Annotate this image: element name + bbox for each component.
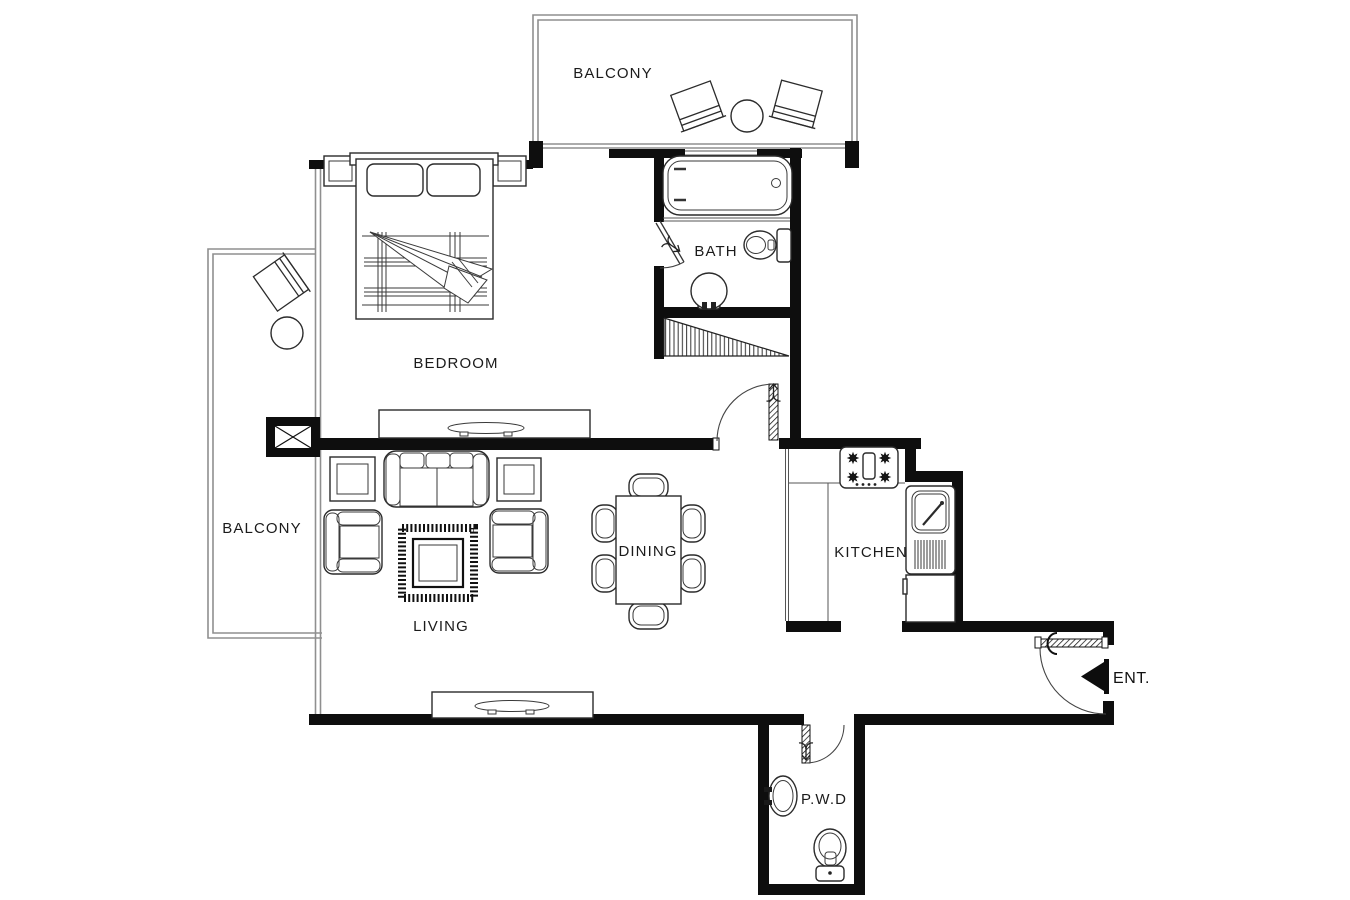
pwd-east-wall xyxy=(854,714,865,895)
tap-icon xyxy=(764,787,772,792)
label-dining: DINING xyxy=(618,543,677,560)
armchair xyxy=(490,509,548,573)
round-table-icon xyxy=(271,317,303,349)
tap-icon xyxy=(764,800,772,805)
patio-chair-icon xyxy=(769,79,825,128)
patio-chair-icon xyxy=(252,252,311,313)
label-powder-room: P.W.D xyxy=(801,791,847,808)
toilet xyxy=(744,229,791,262)
tap-icon xyxy=(702,302,707,309)
label-kitchen: KITCHEN xyxy=(834,544,908,561)
powder-room-door xyxy=(799,725,844,763)
label-bedroom: BEDROOM xyxy=(413,355,498,372)
armchair xyxy=(324,510,382,574)
entrance-marker xyxy=(1081,659,1109,694)
label-balcony-top: BALCONY xyxy=(573,65,652,82)
bedroom-furniture xyxy=(324,153,590,438)
coffee-table-rug xyxy=(402,528,474,598)
balcony-left-cap xyxy=(529,141,543,168)
tap-icon xyxy=(711,302,716,309)
label-balcony-left: BALCONY xyxy=(222,520,301,537)
top-balcony-furniture xyxy=(668,79,825,132)
tv-console xyxy=(432,692,593,718)
round-table-icon xyxy=(731,100,763,132)
hallway-door xyxy=(713,384,781,450)
column-marker xyxy=(266,417,320,457)
left-balcony-furniture xyxy=(252,252,311,349)
stove xyxy=(840,447,898,488)
floor-plan: BALCONY BEDROOM BATH BALCONY LIVING DINI… xyxy=(0,0,1350,900)
pillow xyxy=(427,164,480,196)
pedestal-sink xyxy=(691,273,727,309)
tv-console xyxy=(379,410,590,438)
bedroom-living-wall xyxy=(320,438,718,450)
pwd-west-wall xyxy=(758,720,769,895)
bathtub xyxy=(663,156,792,215)
entrance-bar-icon xyxy=(1104,659,1109,694)
refrigerator xyxy=(903,575,955,622)
patio-chair-icon xyxy=(668,80,726,132)
south-wall-east xyxy=(857,714,1114,725)
label-entrance: ENT. xyxy=(1113,670,1150,687)
pillow xyxy=(367,164,423,196)
toilet xyxy=(814,829,846,881)
balcony-right-cap xyxy=(845,141,859,168)
label-bath: BATH xyxy=(694,243,737,260)
sofa xyxy=(384,451,489,507)
living-furniture xyxy=(324,451,593,718)
bedroom-bath-door xyxy=(656,221,684,268)
floor-plan-page: BALCONY BEDROOM BATH BALCONY LIVING DINI… xyxy=(0,0,1350,900)
kitchen-sink xyxy=(906,486,955,574)
pwd-south-wall xyxy=(758,884,865,895)
kitchen-south-stub-west xyxy=(786,621,841,632)
entrance-arrow-icon xyxy=(1081,662,1104,691)
bath-south-wall xyxy=(654,307,801,318)
label-living: LIVING xyxy=(413,618,469,635)
top-balcony-railing-inner xyxy=(538,20,852,148)
stair-hatch xyxy=(664,318,789,356)
double-bed xyxy=(350,153,498,319)
